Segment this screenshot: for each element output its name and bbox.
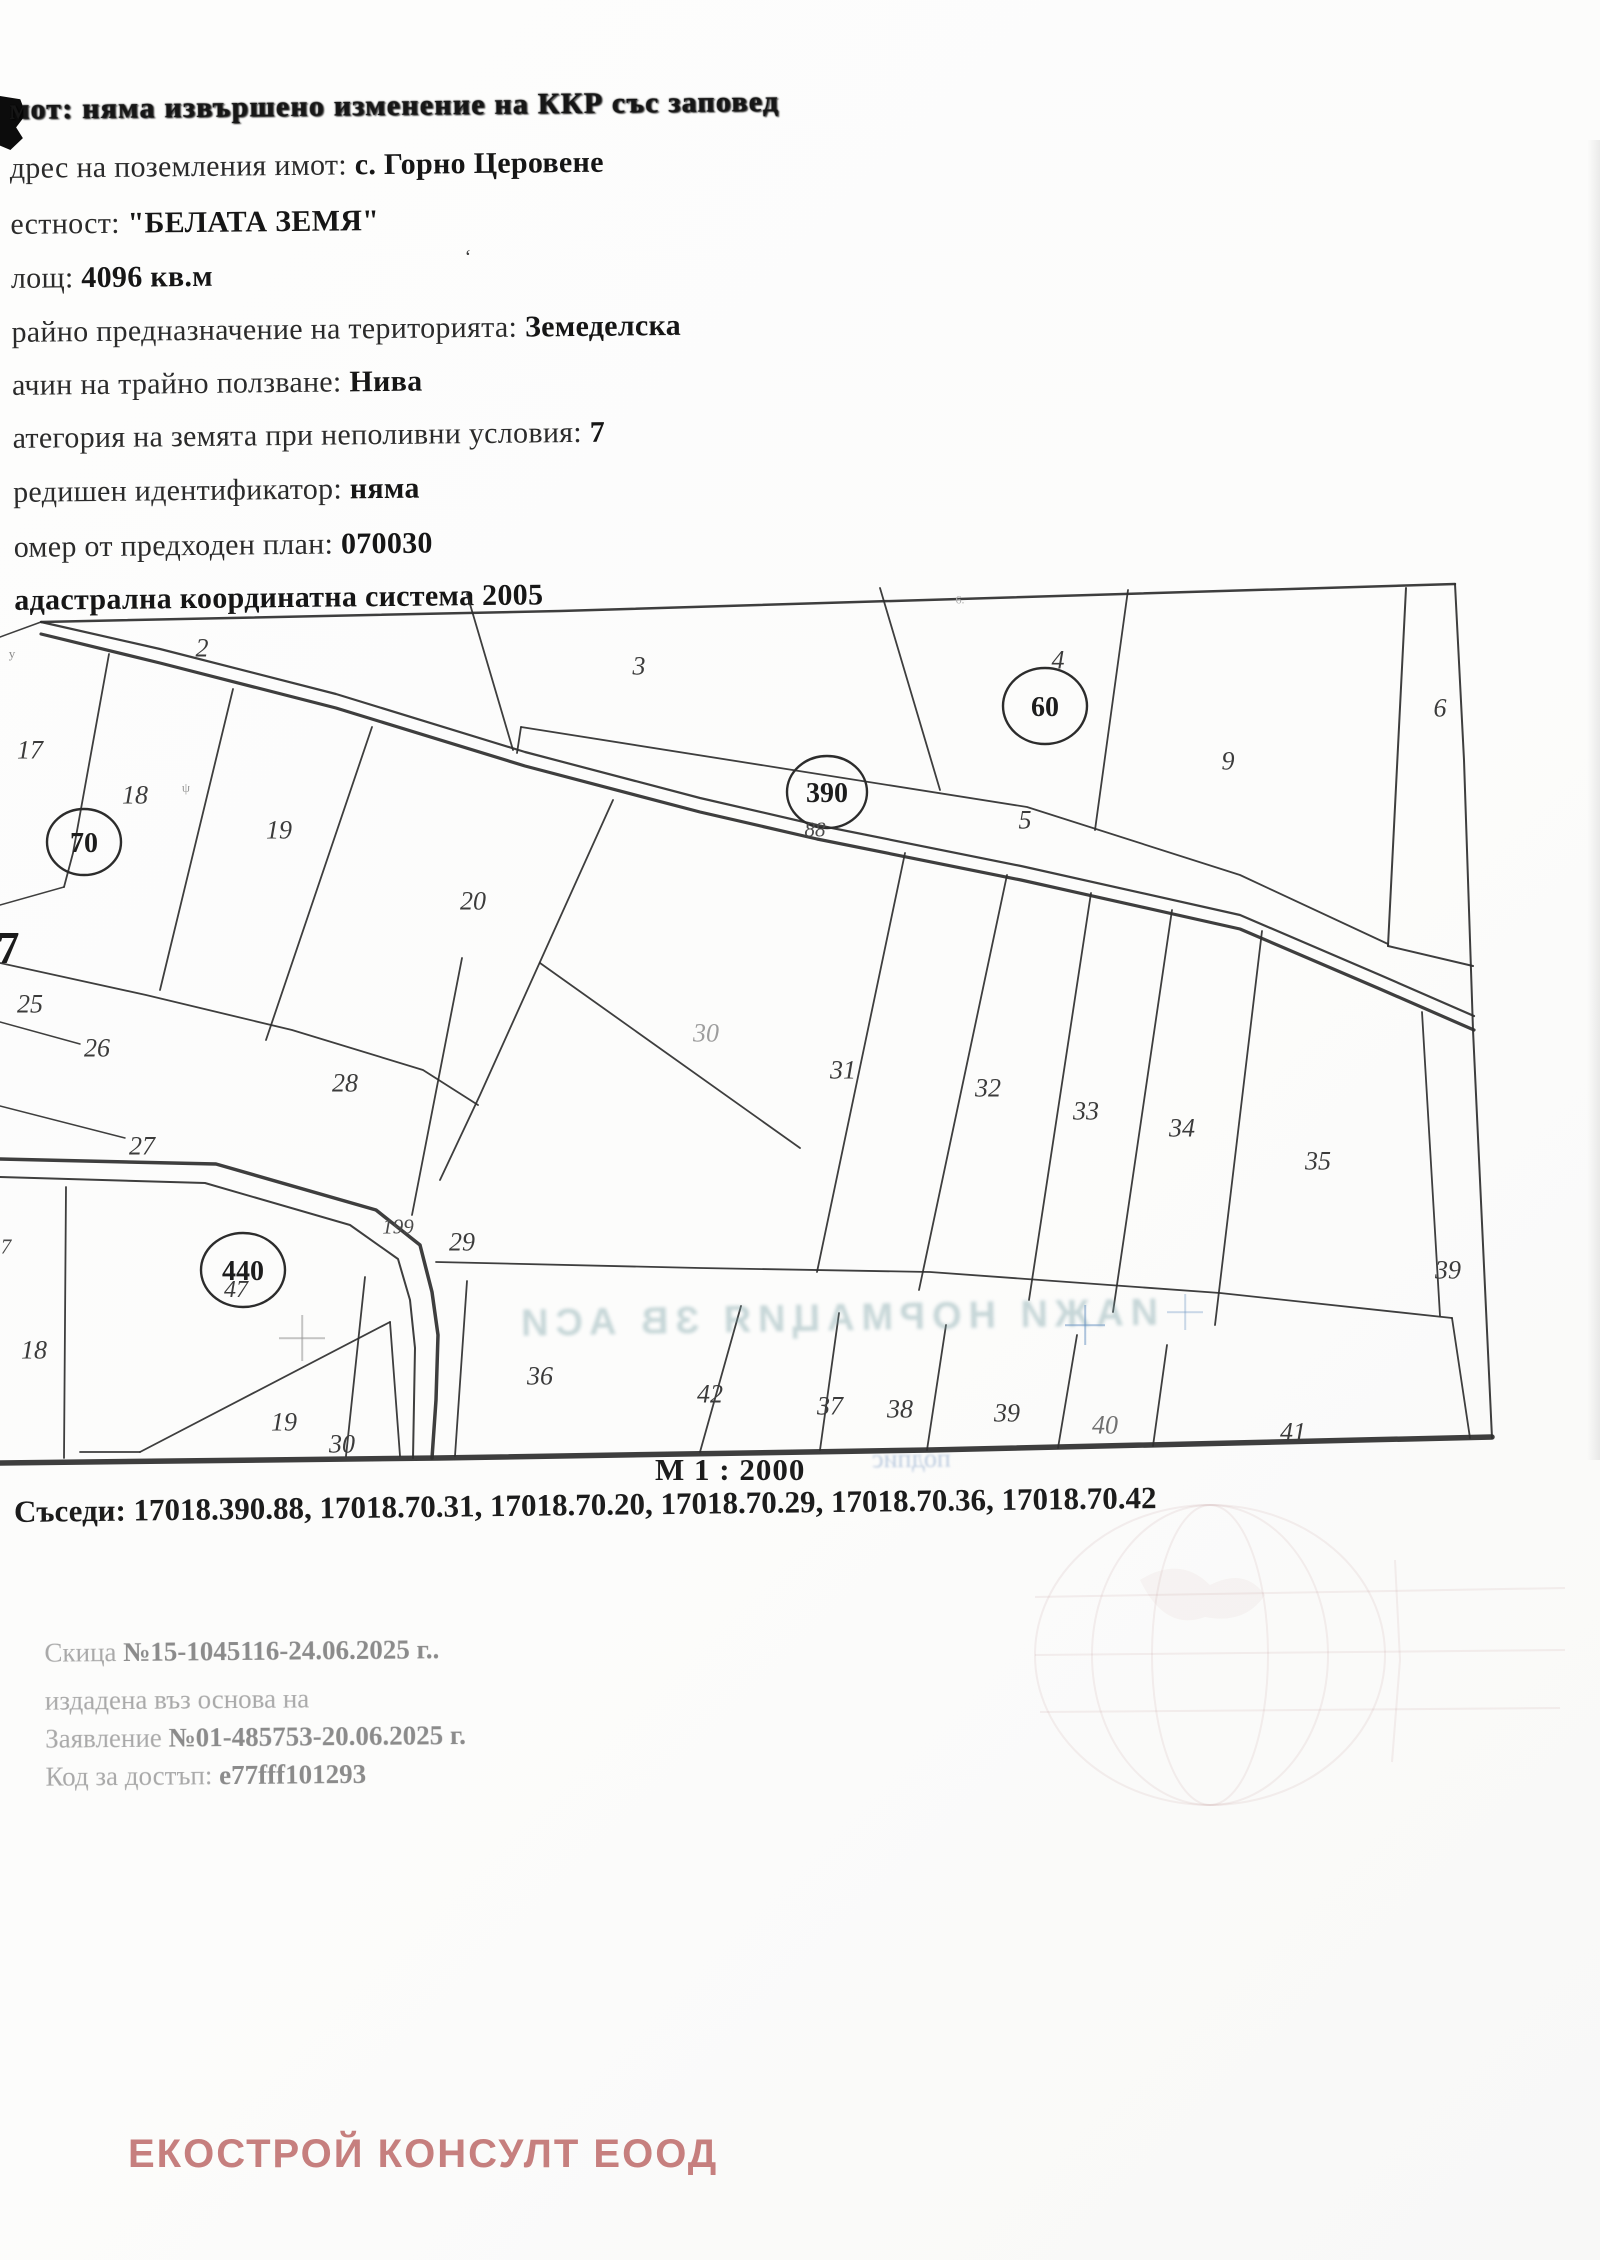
issuance-label: издадена въз основа на — [45, 1683, 310, 1715]
boundary-line — [927, 1325, 946, 1450]
parcel-label: 30 — [693, 1019, 719, 1049]
parcel-label: 4 — [1052, 646, 1065, 676]
issuance-value: №01-485753-20.06.2025 г. — [168, 1720, 466, 1753]
parcel-label: 19 — [271, 1408, 297, 1438]
parcel-label: 18 — [122, 781, 148, 811]
scan-speck: ʻ — [465, 247, 472, 270]
parcel-label: 18 — [21, 1336, 47, 1366]
parcel-label: 39 — [994, 1399, 1020, 1429]
boundary-line — [455, 1281, 467, 1456]
parcel-label: 40 — [1092, 1411, 1118, 1441]
boundary-line — [1058, 1335, 1077, 1448]
boundary-line — [390, 1322, 400, 1456]
boundary-line — [1388, 946, 1473, 966]
parcel-circle-number: 60 — [1031, 692, 1059, 723]
map-scale-label: М 1 : 2000 — [655, 1452, 805, 1488]
parcel-label: 2 — [196, 634, 209, 664]
parcel-label: 41 — [1280, 1418, 1306, 1448]
boundary-line — [1153, 1345, 1167, 1446]
parcel-circle-number: 390 — [806, 778, 848, 809]
scan-speck: ψ — [182, 780, 190, 796]
boundary-line — [160, 689, 233, 990]
parcel-label: 28 — [332, 1069, 358, 1099]
parcel-label: 25 — [17, 990, 43, 1020]
parcel-label: 36 — [527, 1362, 553, 1392]
parcel-label: 20 — [460, 887, 486, 917]
boundary-line — [521, 727, 1388, 944]
boundary-line — [0, 887, 64, 905]
parcel-label: 7 — [0, 921, 20, 974]
parcel-label: 19 — [266, 816, 292, 846]
parcel-label: 199 — [382, 1214, 414, 1239]
parcel-label: 3 — [633, 652, 646, 682]
registration-cross — [1065, 1305, 1105, 1345]
parcel-label: 31 — [830, 1056, 856, 1086]
scan-speck: 6. — [956, 593, 965, 608]
boundary-line — [41, 584, 1455, 622]
cadastral-map: 7039060440 — [0, 0, 1600, 2260]
issuance-label: Код за достъп: — [45, 1760, 219, 1792]
parcel-circle-number: 70 — [70, 828, 98, 859]
boundary-line — [0, 622, 41, 637]
boundary-line — [64, 1187, 66, 1458]
registration-cross — [1167, 1294, 1203, 1330]
boundary-line — [266, 727, 372, 1040]
parcel-label: 7 — [1, 1234, 12, 1259]
parcel-label: 9 — [1222, 747, 1235, 777]
boundary-line — [1095, 590, 1128, 830]
parcel-label: 34 — [1169, 1114, 1195, 1144]
issuance-label: Заявление — [45, 1723, 169, 1754]
ink-bleed-signature: подпис — [872, 1444, 951, 1475]
parcel-label: 47 — [224, 1277, 248, 1304]
boundary-line — [1113, 910, 1172, 1312]
parcel-label: 5 — [1019, 806, 1032, 836]
parcel-label: 26 — [84, 1034, 110, 1064]
boundary-line — [0, 1106, 125, 1138]
parcel-label: 6 — [1434, 694, 1447, 724]
boundary-line — [1452, 1318, 1470, 1438]
issuance-value: №15-1045116-24.06.2025 г.. — [123, 1634, 439, 1667]
parcel-label: 33 — [1073, 1097, 1099, 1127]
boundary-line — [467, 594, 513, 750]
parcel-label: 17 — [17, 736, 43, 766]
parcel-label: 32 — [975, 1074, 1001, 1104]
boundary-line — [1388, 588, 1406, 946]
issuance-label: Скица — [44, 1637, 123, 1668]
boundary-line — [0, 1022, 80, 1044]
parcel-label: 39 — [1435, 1256, 1461, 1286]
parcel-label: 42 — [697, 1380, 723, 1410]
scanned-cadastral-sketch: мот: няма извършено изменение на ККР със… — [0, 0, 1600, 2260]
issuance-value: e77fff101293 — [219, 1759, 366, 1790]
boundary-line — [540, 963, 800, 1148]
parcel-label: 88 — [805, 817, 826, 842]
boundary-line — [41, 634, 1474, 1030]
boundary-line — [1215, 931, 1262, 1325]
issuance-line: Заявление №01-485753-20.06.2025 г. — [45, 1720, 466, 1755]
parcel-label: 37 — [817, 1392, 843, 1422]
parcel-label: 29 — [449, 1228, 475, 1258]
boundary-line — [0, 963, 478, 1105]
parcel-label: 35 — [1305, 1147, 1331, 1177]
boundary-line — [0, 1177, 415, 1458]
parcel-label: 30 — [329, 1430, 355, 1460]
boundary-line — [880, 588, 940, 790]
company-watermark: ЕКОСТРОЙ КОНСУЛТ ЕООД — [128, 2132, 718, 2177]
issuance-line: Скица №15-1045116-24.06.2025 г.. — [44, 1634, 439, 1668]
boundary-line — [440, 800, 613, 1180]
parcel-label: 38 — [887, 1395, 913, 1425]
globe-bleed-watermark — [1035, 1505, 1565, 1805]
scan-speck: y — [9, 646, 16, 662]
boundary-line — [412, 958, 462, 1215]
parcel-label: 27 — [129, 1132, 155, 1162]
issuance-line: Код за достъп: e77fff101293 — [45, 1759, 366, 1793]
issuance-line: издадена въз основа на — [45, 1683, 310, 1716]
registration-cross — [279, 1315, 325, 1361]
